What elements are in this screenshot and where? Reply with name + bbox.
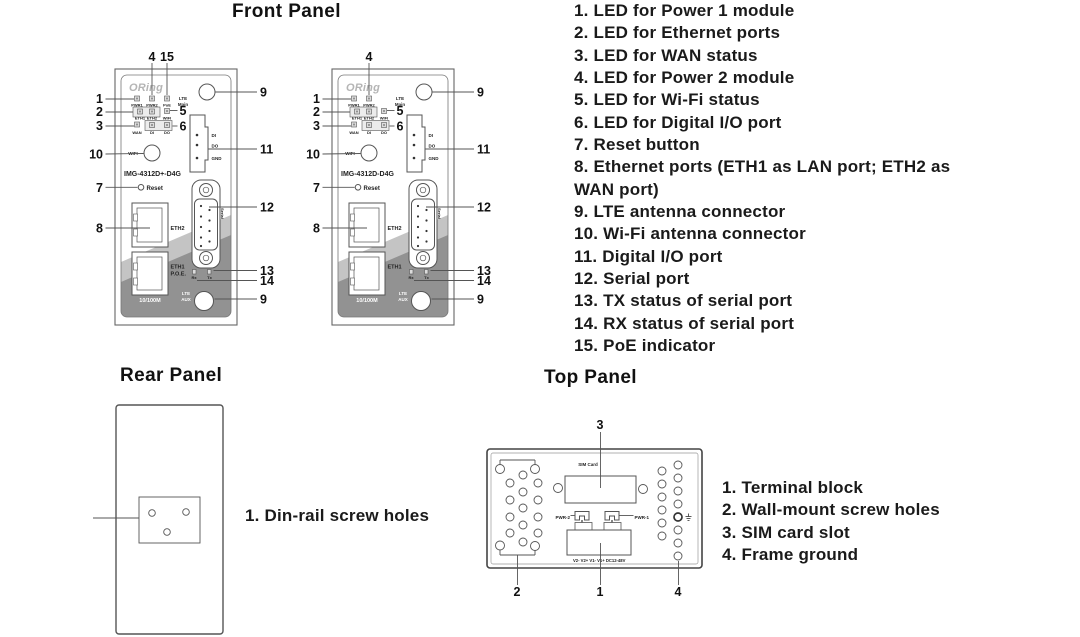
- led-di-label: DI: [150, 130, 154, 135]
- front-panel-legend: 1. LED for Power 1 module 2. LED for Eth…: [574, 0, 1080, 358]
- eth2-port: [349, 203, 385, 247]
- terminal-tab: [575, 523, 592, 531]
- pwr1-label: PWR-1: [635, 515, 650, 520]
- terminal-pin-labels: V2- V2+ V1- V1+ DC12-48V: [573, 558, 626, 563]
- eth1-port: [132, 252, 168, 295]
- serial-port: Serial: [192, 180, 225, 268]
- legend-item: 1. LED for Power 1 module: [574, 0, 1080, 22]
- legend-item: 10. Wi-Fi antenna connector: [574, 223, 1080, 245]
- rear-panel-diagram: [88, 400, 233, 637]
- sim-card-label: SIM Card: [578, 462, 598, 467]
- wall-mount-screw-hole: [496, 465, 505, 474]
- din-rail-screw-hole: [149, 510, 156, 517]
- legend-item: 4. Frame ground: [722, 544, 940, 566]
- callout-12: 12: [477, 200, 491, 214]
- callout-terminal: 1: [597, 585, 604, 599]
- top-panel-title: Top Panel: [544, 367, 637, 389]
- callout-11: 11: [477, 142, 490, 156]
- callout-7: 7: [313, 181, 320, 195]
- led-do-label: DO: [381, 130, 387, 135]
- serial-label: Serial: [220, 208, 225, 219]
- eth1-label: ETH1: [388, 265, 402, 271]
- legend-item: 15. PoE indicator: [574, 335, 1080, 357]
- led-wan-label: WAN: [132, 130, 141, 135]
- legend-item: 1. Terminal block: [722, 477, 940, 499]
- callout-5: 5: [397, 104, 404, 118]
- din-rail-mount-plate: [139, 497, 200, 543]
- legend-item: 2. LED for Ethernet ports: [574, 22, 1080, 44]
- legend-item: 5. LED for Wi-Fi status: [574, 89, 1080, 111]
- callout-11: 11: [260, 142, 273, 156]
- callout-8: 8: [313, 221, 320, 235]
- dio-di-label: DI: [429, 133, 434, 138]
- dio-do-label: DO: [429, 144, 436, 149]
- reset-label: Reset: [147, 186, 163, 192]
- front-panel-device: ORing LTE Main PWR1 PWR2 ETH1 ETH2 WIFI …: [297, 44, 507, 334]
- callout-1: 1: [96, 92, 103, 106]
- pwr2-label: PWR-2: [556, 515, 571, 520]
- screw-hole: [554, 484, 563, 493]
- legend-item: 4. LED for Power 2 module: [574, 67, 1080, 89]
- led-eth1-label: ETH1: [135, 116, 146, 121]
- legend-item: 8. Ethernet ports (ETH1 as LAN port; ETH…: [574, 156, 1080, 201]
- led-eth2-label: ETH2: [364, 116, 375, 121]
- callout-2: 2: [96, 105, 103, 119]
- lte-main-label: LTE: [179, 96, 187, 101]
- din-rail-screw-hole: [183, 509, 190, 516]
- rx-label: Rx: [191, 275, 197, 280]
- legend-item: 1. Din-rail screw holes: [245, 506, 429, 526]
- led-wan-label: WAN: [349, 130, 358, 135]
- lte-main-antenna-connector: [416, 84, 432, 100]
- dio-gnd-label: GND: [429, 156, 440, 161]
- eth1-label: ETH1: [171, 265, 185, 271]
- rear-panel-title: Rear Panel: [120, 365, 222, 387]
- wall-mount-screw-hole: [496, 541, 505, 550]
- port-speed-label: 10/100M: [356, 298, 378, 304]
- din-rail-screw-hole: [164, 529, 171, 536]
- frame-ground-hole: [674, 513, 682, 521]
- led-eth2-label: ETH2: [147, 116, 158, 121]
- callout-10: 10: [89, 148, 103, 162]
- front-panel-title: Front Panel: [232, 1, 341, 23]
- rx-label: Rx: [408, 275, 414, 280]
- legend-item: 12. Serial port: [574, 268, 1080, 290]
- led-wifi-label: WIFI: [380, 116, 388, 121]
- callout-wall-mount: 2: [514, 585, 521, 599]
- rx-led: [410, 270, 414, 275]
- oring-logo: ORing: [129, 82, 163, 94]
- eth1-port: [349, 252, 385, 295]
- lte-aux-antenna-connector: [412, 292, 431, 311]
- tx-led: [425, 270, 429, 275]
- callout-14: 14: [477, 274, 491, 288]
- callout-8: 8: [96, 221, 103, 235]
- callout-9-top: 9: [260, 85, 267, 99]
- lte-aux-label: LTE: [399, 291, 407, 296]
- wifi-antenna-connector: [361, 145, 377, 161]
- callout-12: 12: [260, 200, 274, 214]
- eth1-poe-label: P.O.E.: [171, 272, 187, 278]
- eth2-port: [132, 203, 168, 247]
- rx-led: [193, 270, 197, 275]
- callout-1: 1: [313, 92, 320, 106]
- tx-label: Tx: [424, 275, 429, 280]
- legend-item: 9. LTE antenna connector: [574, 201, 1080, 223]
- callout-9-bottom: 9: [260, 292, 267, 306]
- legend-item: 13. TX status of serial port: [574, 290, 1080, 312]
- dio-gnd-label: GND: [212, 156, 223, 161]
- top-panel-legend: 1. Terminal block 2. Wall-mount screw ho…: [722, 477, 940, 567]
- callout-6: 6: [397, 119, 404, 133]
- lte-main-label: LTE: [396, 96, 404, 101]
- lte-aux-label-2: AUX: [398, 297, 408, 302]
- tx-led: [208, 270, 212, 275]
- lte-main-antenna-connector: [199, 84, 215, 100]
- port-speed-label: 10/100M: [139, 298, 161, 304]
- led-wifi-label: WIFI: [163, 116, 171, 121]
- callout-9-bottom: 9: [477, 292, 484, 306]
- wifi-antenna-connector: [144, 145, 160, 161]
- terminal-tab: [604, 523, 621, 531]
- front-panel-device: ORing LTE Main PWR1 PWR2 PoE ETH1 ETH2 W…: [80, 44, 290, 334]
- callout-2: 2: [313, 105, 320, 119]
- terminal-block: [567, 530, 631, 555]
- legend-item: 11. Digital I/O port: [574, 246, 1080, 268]
- callout-6: 6: [180, 119, 187, 133]
- dio-do-label: DO: [212, 144, 219, 149]
- digital-io-port: [190, 115, 208, 172]
- wall-mount-screw-hole: [531, 542, 540, 551]
- led-eth1-label: ETH1: [352, 116, 363, 121]
- reset-button: [355, 185, 361, 191]
- top-panel-diagram: SIM Card PWR-2 PWR-1 V2- V2+ V1- V1+ DC1…: [480, 415, 710, 605]
- oring-logo: ORing: [346, 82, 380, 94]
- legend-item: 14. RX status of serial port: [574, 313, 1080, 335]
- tx-label: Tx: [207, 275, 212, 280]
- reset-button: [138, 185, 144, 191]
- digital-io-port: [407, 115, 425, 172]
- legend-item: 2. Wall-mount screw holes: [722, 499, 940, 521]
- callout-7: 7: [96, 181, 103, 195]
- callout-14: 14: [260, 274, 274, 288]
- model-name: IMG-4312D-D4G: [341, 171, 394, 178]
- callout-4: 4: [366, 50, 373, 64]
- led-poe: [165, 96, 170, 101]
- rear-panel-legend: 1. Din-rail screw holes: [245, 506, 429, 526]
- model-name: IMG-4312D+-D4G: [124, 171, 182, 178]
- legend-item: 7. Reset button: [574, 134, 1080, 156]
- serial-port: Serial: [409, 180, 442, 268]
- led-poe-label: PoE: [163, 103, 171, 108]
- legend-item: 3. SIM card slot: [722, 522, 940, 544]
- wall-mount-screw-hole: [531, 465, 540, 474]
- screw-hole: [639, 485, 648, 494]
- manual-page: Front Panel Rear Panel Top Panel ORing L…: [0, 0, 1080, 637]
- legend-item: 3. LED for WAN status: [574, 45, 1080, 67]
- callout-3: 3: [313, 119, 320, 133]
- dio-di-label: DI: [212, 133, 217, 138]
- eth2-label: ETH2: [388, 226, 402, 232]
- lte-aux-label-2: AUX: [181, 297, 191, 302]
- led-do-label: DO: [164, 130, 170, 135]
- eth2-label: ETH2: [171, 226, 185, 232]
- callout-4: 4: [149, 50, 156, 64]
- lte-aux-antenna-connector: [195, 292, 214, 311]
- legend-item: 6. LED for Digital I/O port: [574, 112, 1080, 134]
- serial-label: Serial: [437, 208, 442, 219]
- callout-3: 3: [96, 119, 103, 133]
- callout-9-top: 9: [477, 85, 484, 99]
- callout-ground: 4: [675, 585, 682, 599]
- reset-label: Reset: [364, 186, 380, 192]
- svg-text:15: 15: [160, 50, 174, 64]
- callout-10: 10: [306, 148, 320, 162]
- callout-5: 5: [180, 104, 187, 118]
- led-di-label: DI: [367, 130, 371, 135]
- lte-aux-label: LTE: [182, 291, 190, 296]
- callout-sim: 3: [597, 418, 604, 432]
